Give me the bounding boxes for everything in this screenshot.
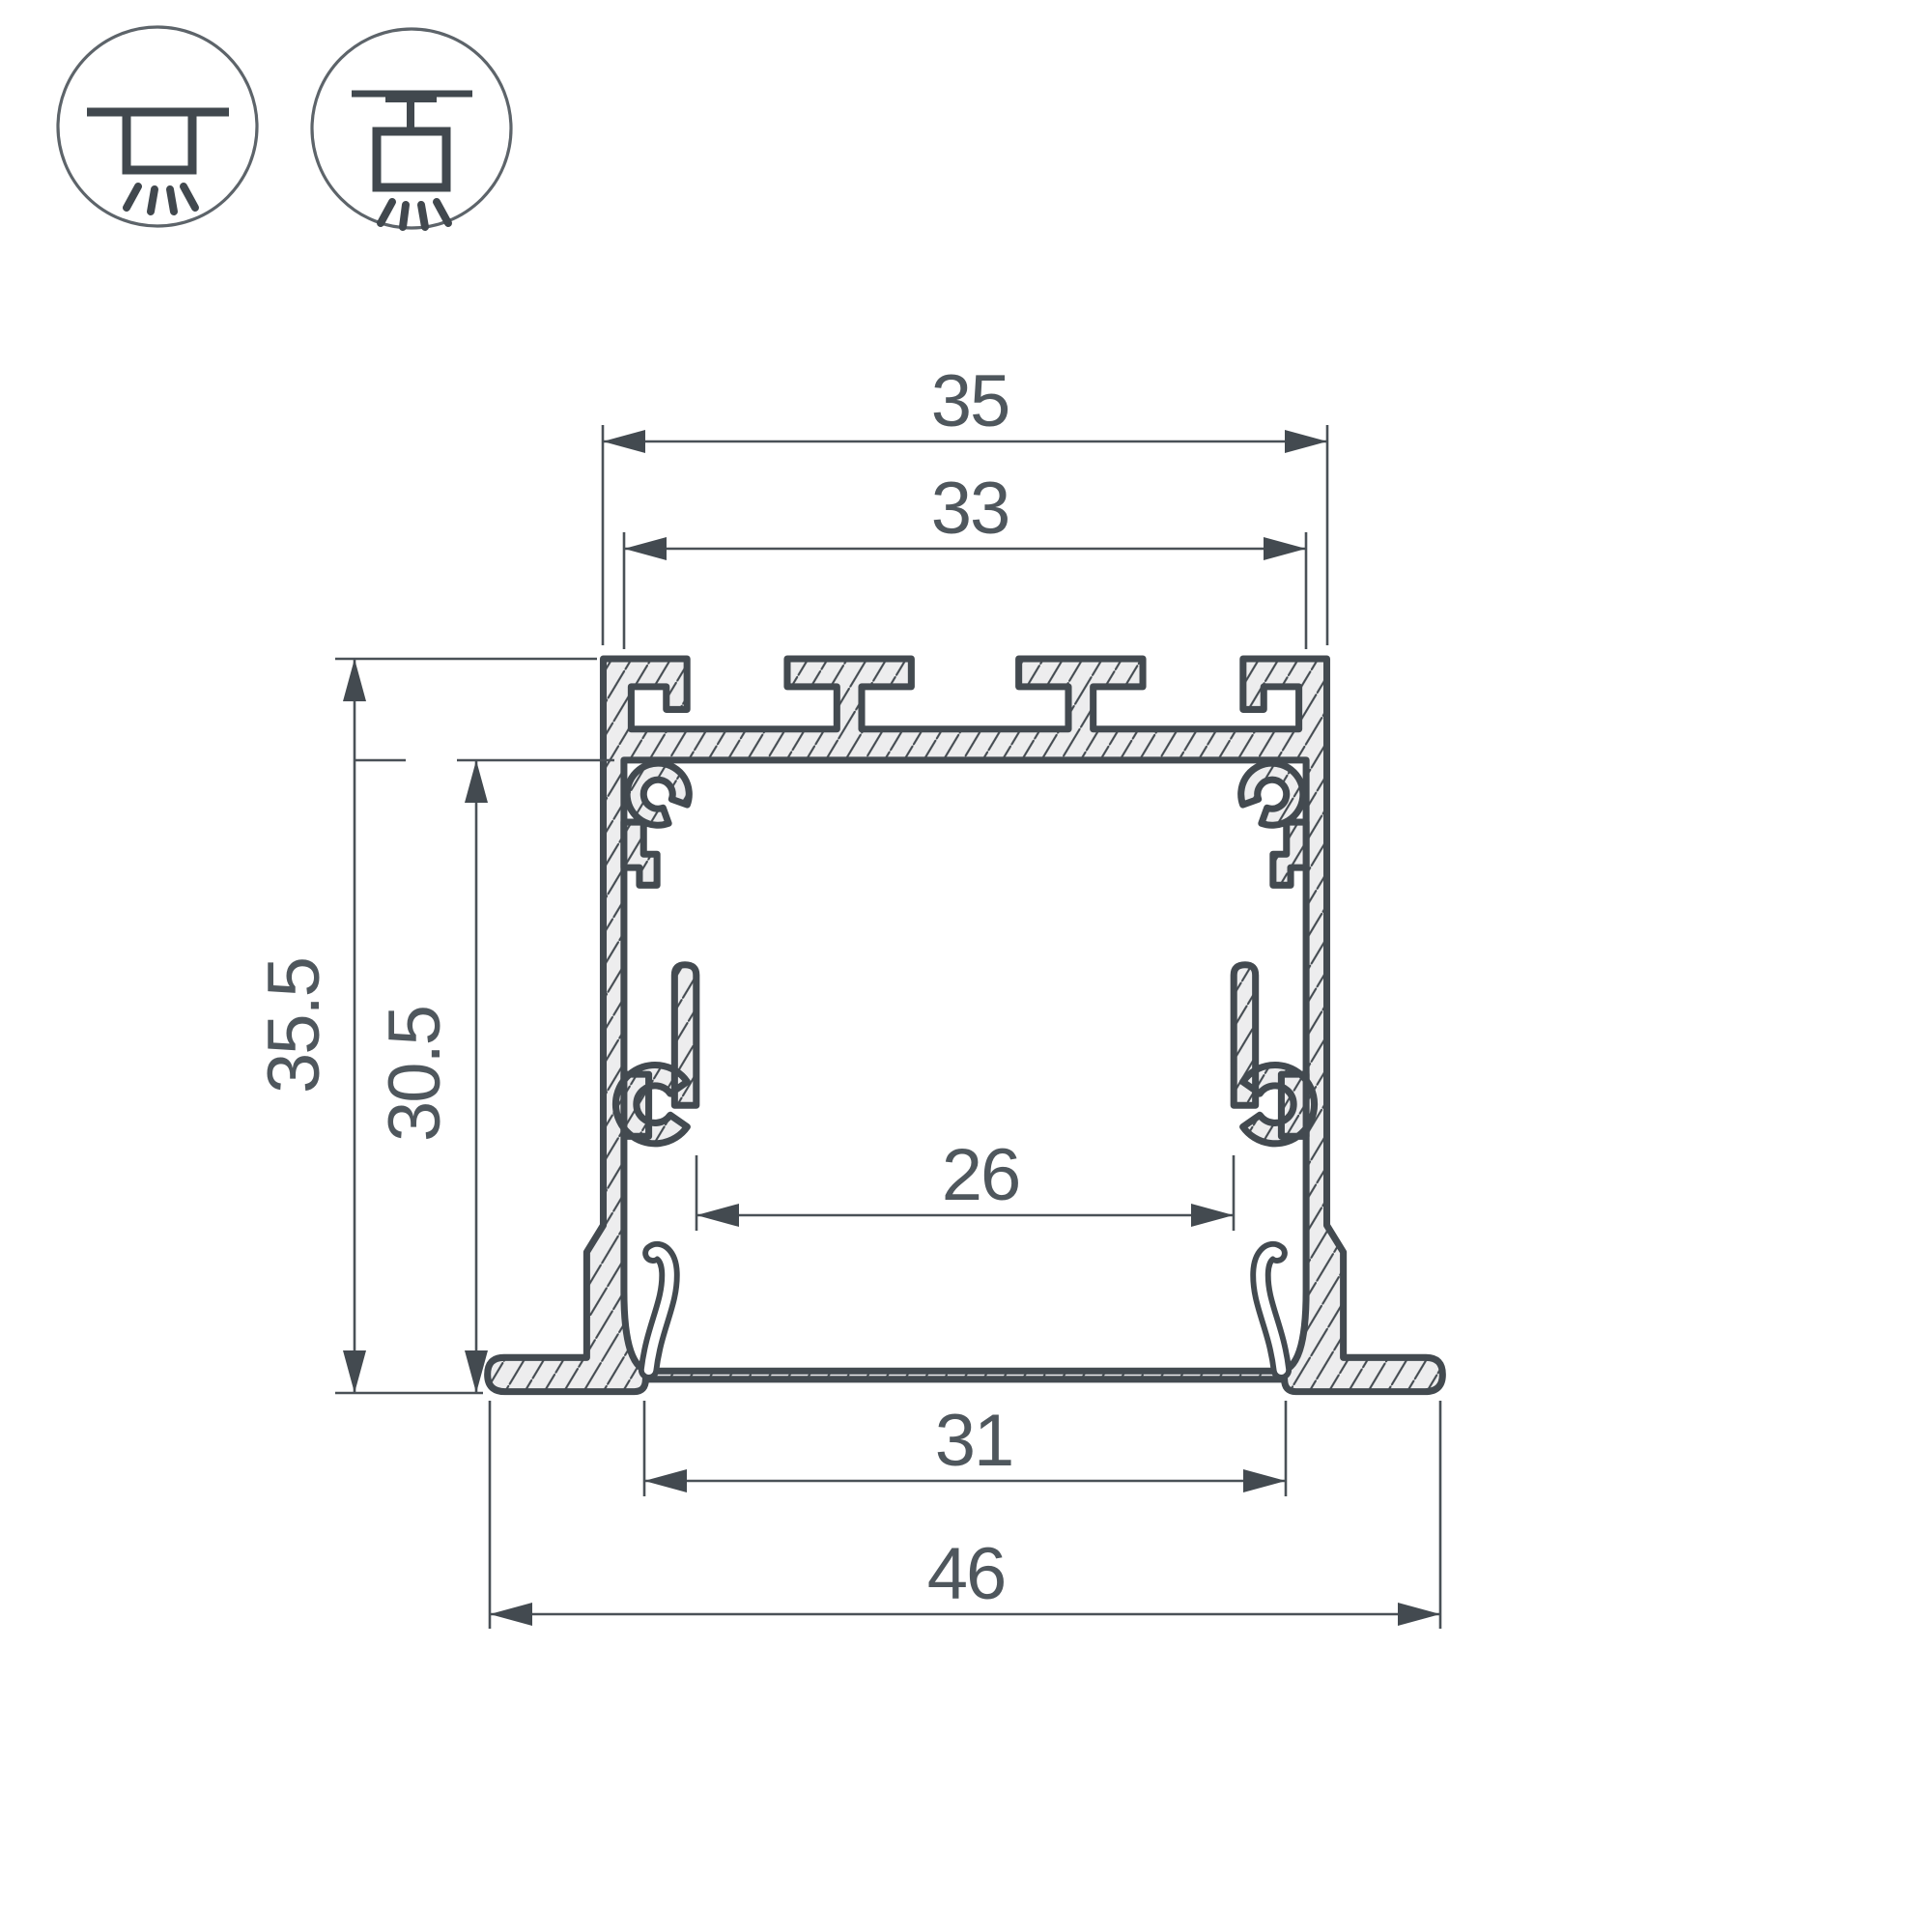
profile-cross-section (488, 659, 1443, 1392)
dim-inner-height: 30.5 (374, 1007, 456, 1142)
dimension-arrows (343, 430, 1440, 1626)
dim-overall-height: 35.5 (253, 958, 335, 1094)
dim-inner-width: 26 (942, 1134, 1020, 1216)
dim-inner-top-width: 33 (931, 468, 1009, 550)
mounting-spring-right (1261, 1252, 1281, 1371)
recessed-mount-icon (58, 27, 257, 226)
dimension-lines (335, 425, 1440, 1629)
dim-bottom-opening: 31 (935, 1400, 1013, 1482)
dim-top-width: 35 (931, 360, 1009, 442)
drawing-canvas: 35 33 35.5 30.5 26 31 46 (0, 0, 1932, 1932)
mounting-spring-left (649, 1252, 669, 1371)
profile-drawing: 35 33 35.5 30.5 26 31 46 (0, 0, 1932, 1932)
surface-mount-icon (312, 29, 511, 228)
dim-flange-width: 46 (927, 1533, 1006, 1615)
